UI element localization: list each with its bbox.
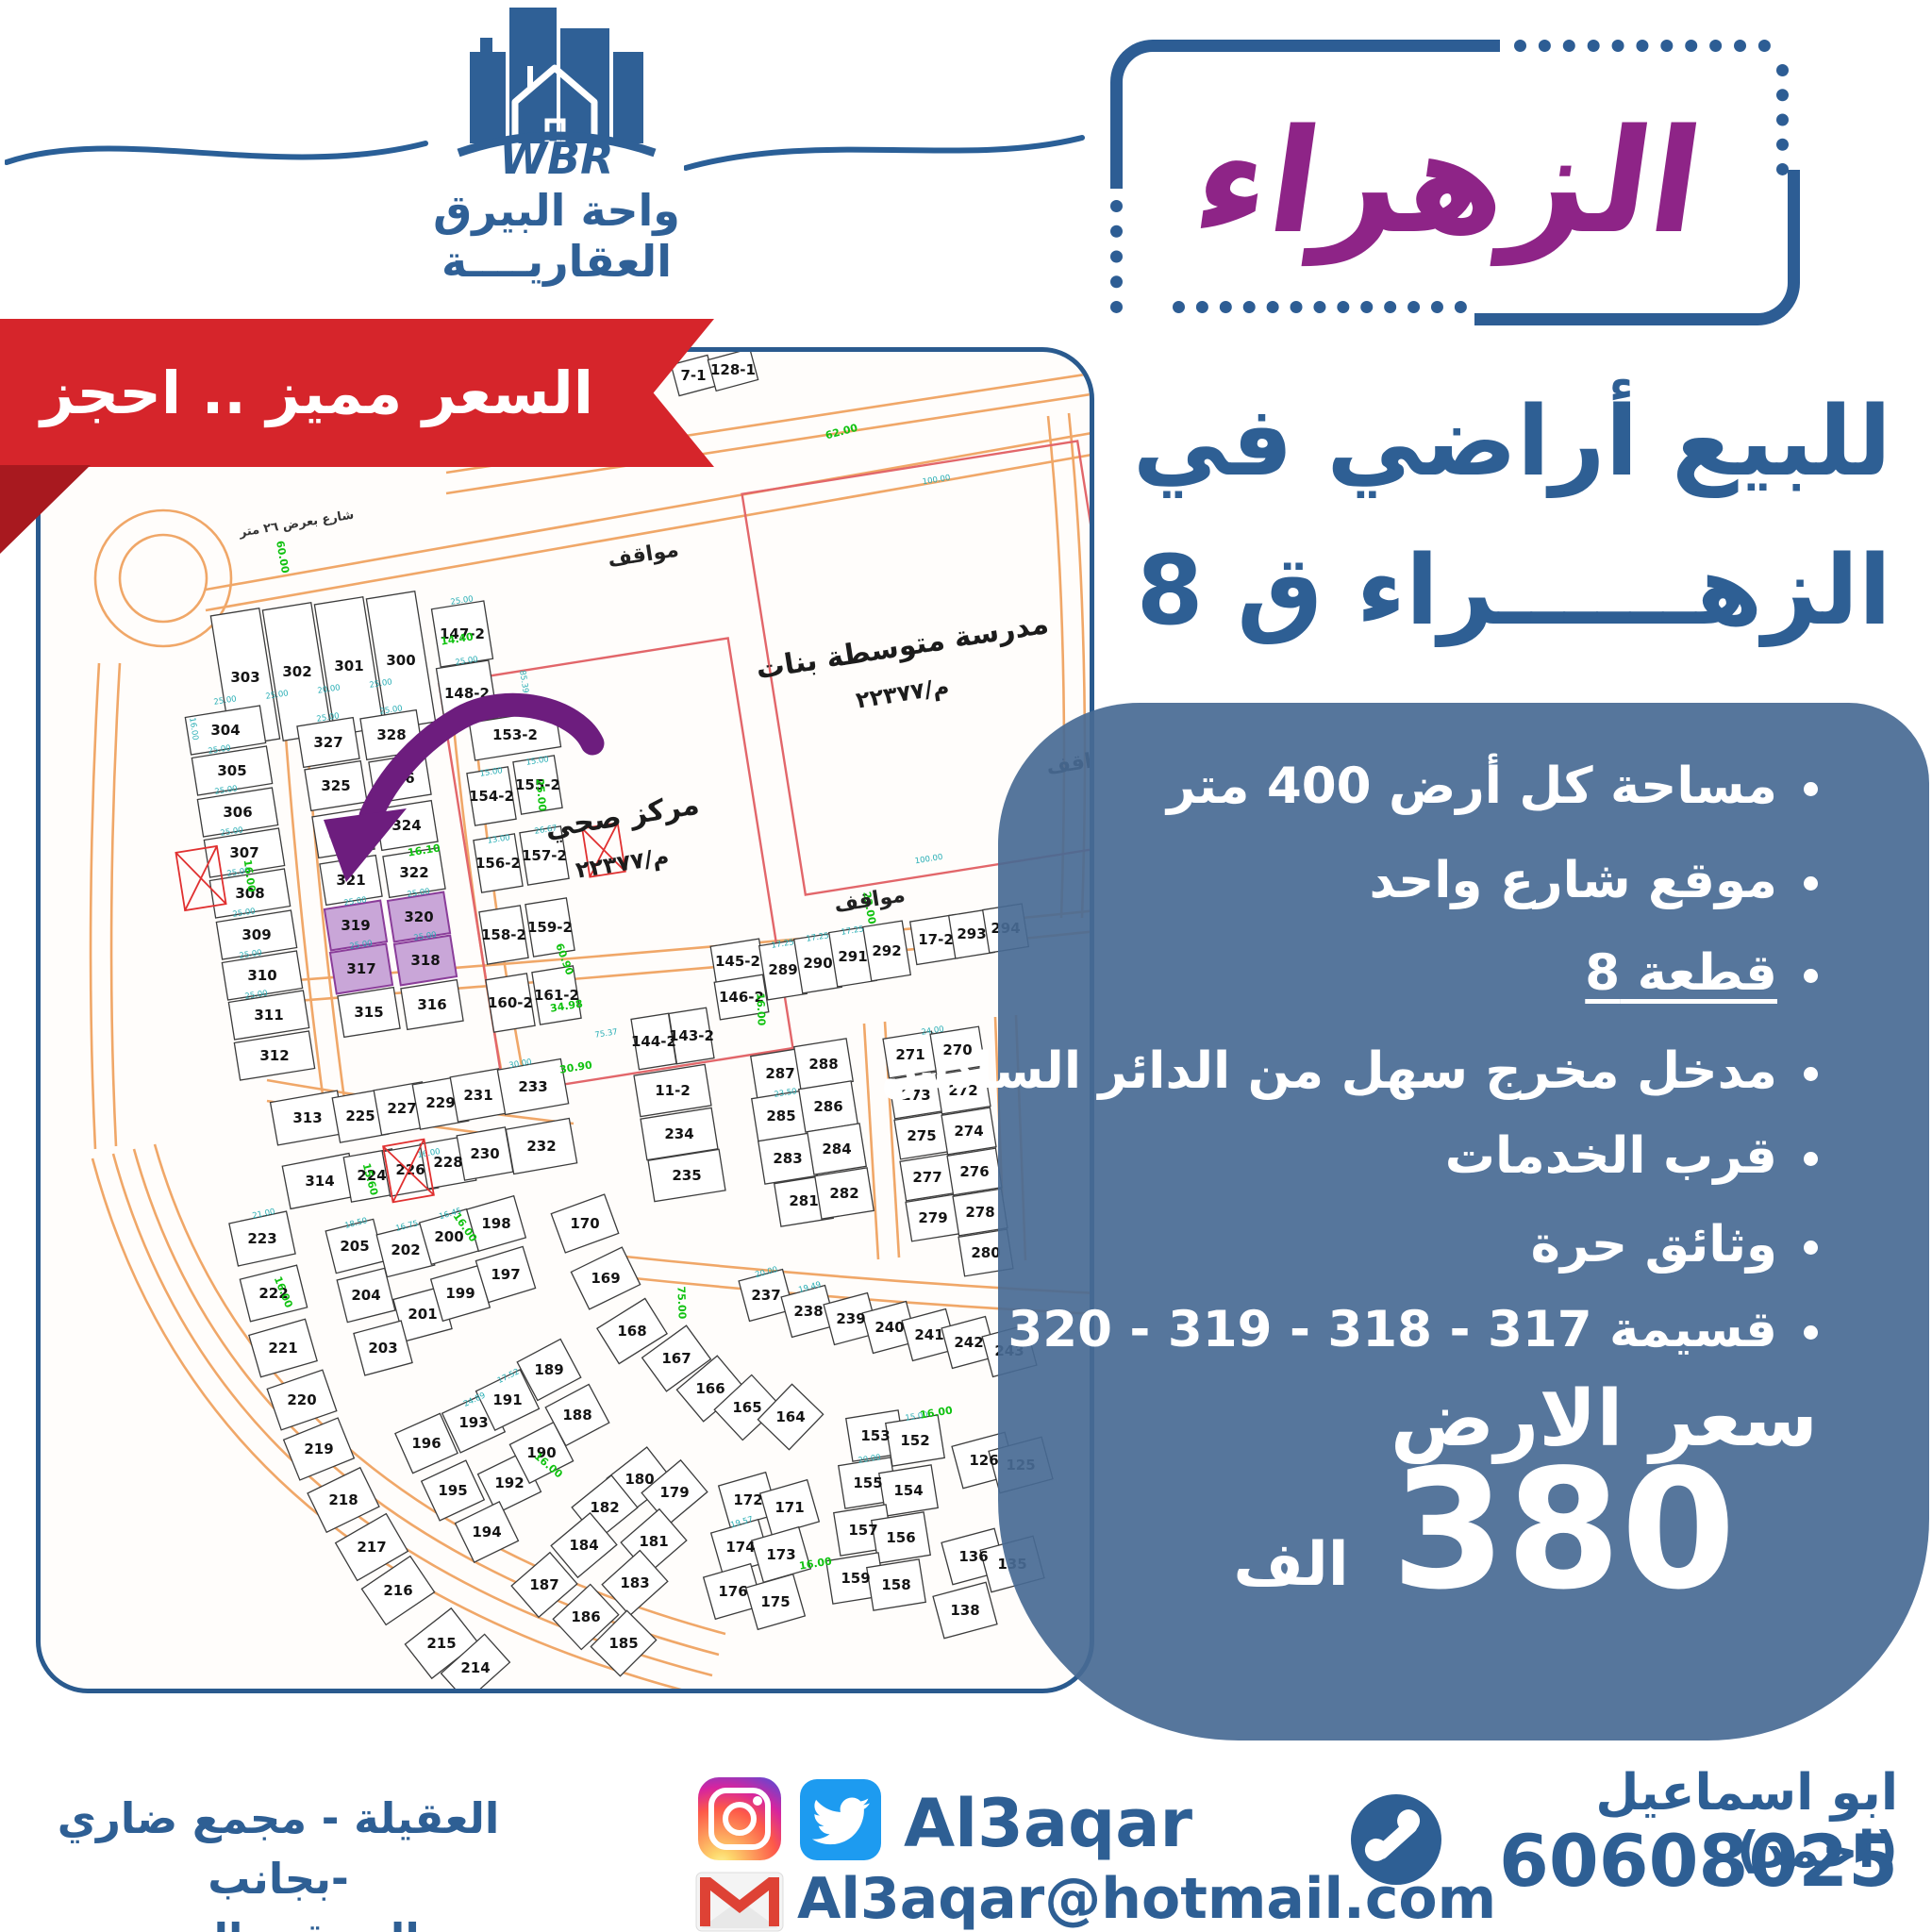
plot-number: 232 <box>526 1138 556 1155</box>
feature-item: مدخل مخرج سهل من الدائر السادس <box>881 1042 1818 1100</box>
plot-number: 7-1 <box>680 367 706 384</box>
plot-number: 187 <box>529 1576 558 1593</box>
feature-item: موقع شارع واحد <box>1369 852 1818 909</box>
plot-number: 158-2 <box>481 926 526 943</box>
site-plan-map: 303302301300147-2148-2304305306307308309… <box>36 347 1094 1693</box>
plot-number: 169 <box>591 1270 620 1287</box>
plot-number: 192 <box>494 1474 524 1491</box>
dimension-label: 85.39 <box>517 670 530 694</box>
poster: WBR واحة البيرق العقاريــــة الزهراء للب… <box>0 0 1932 1932</box>
road-width-label: 75.00 <box>675 1286 688 1320</box>
plot-number: 156 <box>886 1529 915 1546</box>
plot-number: 193 <box>458 1414 488 1431</box>
plot-number: 204 <box>351 1287 380 1304</box>
school-label: مدرسة متوسطة بنات <box>754 608 1051 687</box>
plot-number: 322 <box>399 864 428 881</box>
plot-number: 327 <box>313 734 342 751</box>
plot-number: 278 <box>965 1204 994 1221</box>
instagram-icon[interactable] <box>696 1775 783 1862</box>
road-width-label: 16.00 <box>754 992 767 1026</box>
plot-number: 291 <box>838 948 867 965</box>
parking-label: مواقف <box>607 538 681 573</box>
plot-number: 286 <box>813 1098 842 1115</box>
plot-number: 315 <box>354 1004 383 1021</box>
price: الف 380 <box>1234 1448 1736 1613</box>
gmail-icon[interactable] <box>695 1872 784 1932</box>
plot-number: 138 <box>950 1602 979 1619</box>
wave-middle-icon <box>684 125 1085 183</box>
feature-item: قرب الخدمات <box>1445 1127 1818 1185</box>
plot-number: 217 <box>357 1539 386 1556</box>
plot-number: 145-2 <box>715 953 760 970</box>
plot-number: 197 <box>491 1266 520 1283</box>
plot-number: 328 <box>376 726 406 743</box>
phone-icon <box>1347 1790 1445 1889</box>
plot-number: 202 <box>391 1241 420 1258</box>
plot-number: 159-2 <box>527 919 573 936</box>
plot-number: 11-2 <box>655 1082 691 1099</box>
plot-number: 284 <box>822 1141 851 1158</box>
plot-number: 175 <box>760 1593 790 1610</box>
plot-number: 173 <box>766 1546 795 1563</box>
address-line2: البيرق - الدور السادس - مكتب 6 <box>52 1909 505 1932</box>
road-width-label: 62.00 <box>824 422 859 442</box>
feature-item: قسيمة 317 ‏- 318 ‏- 319 ‏- 320 <box>1008 1301 1818 1358</box>
plot-number: 238 <box>793 1303 823 1320</box>
plot-number: 288 <box>808 1056 838 1073</box>
bullet-icon <box>1804 1067 1818 1081</box>
subtitle-line2: الزهــــــراء ق 8 <box>1057 517 1891 666</box>
social-handle[interactable]: Al3aqar <box>904 1785 1192 1862</box>
plot-number: 235 <box>672 1167 701 1184</box>
plot-number: 231 <box>463 1087 492 1104</box>
plot-number: 168 <box>617 1323 646 1340</box>
plot-number: 17-2 <box>918 931 954 948</box>
plot-number: 156-2 <box>475 855 521 872</box>
plot-number: 189 <box>534 1361 563 1378</box>
subtitle-line1: للبيع أراضي في <box>1057 368 1891 517</box>
plot-number: 309 <box>241 926 271 943</box>
plot-number: 233 <box>518 1078 547 1095</box>
plot-number: 136 <box>958 1548 988 1565</box>
plot-number: 279 <box>918 1209 947 1226</box>
plot-number: 303 <box>230 669 259 686</box>
plot-number: 225 <box>345 1108 375 1124</box>
plot-number: 157-2 <box>522 847 567 864</box>
features-panel: مساحة كل أرض 400 متر موقع شارع واحد قطعة… <box>998 703 1929 1740</box>
plot-number: 171 <box>774 1499 804 1516</box>
plot-number: 188 <box>562 1407 591 1424</box>
plot-number: 305 <box>217 762 246 779</box>
feature-item: مساحة كل أرض 400 متر <box>1167 758 1818 815</box>
address-line1: العقيلة - مجمع ضاري -بجانب <box>52 1789 505 1909</box>
street-label: شارع بعرض ٢٦ متر <box>238 508 356 541</box>
plot-number: 281 <box>789 1192 818 1209</box>
plot-number: 293 <box>957 925 986 942</box>
plot-number: 227 <box>387 1100 416 1117</box>
dimension-label: 100.00 <box>922 474 951 488</box>
plot-number: 182 <box>590 1499 619 1516</box>
plot-number: 154-2 <box>469 788 514 805</box>
plot-number: 275 <box>907 1127 936 1144</box>
twitter-icon[interactable] <box>798 1777 883 1862</box>
agent-phone-number[interactable]: 60608025 <box>1472 1819 1898 1903</box>
plot-number: 218 <box>328 1491 358 1508</box>
plot-number: 200 <box>434 1228 463 1245</box>
plot-number: 183 <box>620 1574 649 1591</box>
plot-number: 289 <box>768 961 797 978</box>
site-plan-svg: 303302301300147-2148-2304305306307308309… <box>41 352 1094 1693</box>
plot-number: 219 <box>304 1441 333 1457</box>
plot-number: 285 <box>766 1108 795 1124</box>
plot-number: 153 <box>860 1427 890 1444</box>
plot-number: 165 <box>732 1399 761 1416</box>
plot-number: 317 <box>346 960 375 977</box>
feature-item: وثائق حرة <box>1531 1216 1818 1274</box>
plot-number: 176 <box>718 1583 747 1600</box>
plot-number: 314 <box>305 1173 334 1190</box>
bullet-icon <box>1804 782 1818 796</box>
clinic-label: مركز صحي <box>542 788 701 844</box>
plot-number: 319 <box>341 917 370 934</box>
plot-number: 179 <box>659 1484 689 1501</box>
subtitle: للبيع أراضي في الزهــــــراء ق 8 <box>1057 368 1891 666</box>
plot-number: 205 <box>340 1238 369 1255</box>
brand-name-line2: العقاريــــة <box>396 236 717 287</box>
bullet-icon <box>1804 1241 1818 1255</box>
plot-number: 199 <box>445 1285 475 1302</box>
plot-number: 229 <box>425 1094 455 1111</box>
plot-number: 283 <box>773 1150 802 1167</box>
road-width-label: 30.90 <box>558 1058 593 1075</box>
plot-number: 164 <box>775 1408 805 1425</box>
plot-number: 301 <box>334 658 363 675</box>
bullet-icon <box>1804 1325 1818 1340</box>
title-box-border-dots <box>1173 301 1467 313</box>
plot-number: 313 <box>292 1109 322 1126</box>
plot-number: 226 <box>395 1161 425 1178</box>
plot-number: 320 <box>404 908 433 925</box>
plot-number: 195 <box>438 1482 467 1499</box>
plot-number: 170 <box>570 1215 599 1232</box>
plot-number: 325 <box>321 777 350 794</box>
plot-number: 239 <box>836 1310 865 1327</box>
plot-number: 221 <box>268 1340 297 1357</box>
plot-number: 215 <box>426 1635 456 1652</box>
plot-number: 160-2 <box>488 994 533 1011</box>
plot-number: 158 <box>881 1576 910 1593</box>
plot-number: 154 <box>893 1482 923 1499</box>
plot-number: 184 <box>569 1537 598 1554</box>
plot-number: 167 <box>661 1350 691 1367</box>
plot-number: 216 <box>383 1582 412 1599</box>
plot-number: 214 <box>460 1659 490 1676</box>
dimension-label: 75.37 <box>594 1027 619 1041</box>
road-width-label: 16.00 <box>919 1404 954 1421</box>
plot-number: 304 <box>210 722 240 739</box>
plot-number: 128-1 <box>710 361 756 378</box>
plot-number: 234 <box>664 1125 693 1142</box>
plot-number: 280 <box>971 1244 1000 1261</box>
road-width-label: 60.00 <box>274 540 291 575</box>
plot-number: 306 <box>223 804 252 821</box>
plot-number: 172 <box>733 1491 762 1508</box>
page-title: الزهراء <box>1106 66 1790 302</box>
plot-number: 166 <box>695 1380 724 1397</box>
bullet-icon <box>1804 876 1818 891</box>
plot-number: 311 <box>254 1007 283 1024</box>
school-number: م/٢٢٣٧٧ <box>854 673 951 713</box>
plot-number: 181 <box>639 1533 668 1550</box>
plot-number: 302 <box>282 663 311 680</box>
plot-number: 143-2 <box>669 1027 714 1044</box>
plot-number: 242 <box>954 1334 983 1351</box>
plot-number: 194 <box>472 1524 501 1541</box>
svg-text:WBR: WBR <box>499 133 613 181</box>
wave-left-icon <box>5 123 429 189</box>
plot-number: 282 <box>829 1185 858 1202</box>
plot-number: 310 <box>247 967 276 984</box>
plot-number: 277 <box>912 1169 941 1186</box>
plot-number: 153-2 <box>492 726 538 743</box>
plot-number: 240 <box>874 1319 904 1336</box>
title-box-border-dots <box>1514 40 1771 52</box>
plot-number: 220 <box>287 1391 316 1408</box>
plot-number: 159 <box>841 1570 870 1587</box>
plot-number: 185 <box>608 1635 638 1652</box>
plot-number: 186 <box>571 1608 600 1625</box>
price-unit: الف <box>1234 1530 1349 1613</box>
wbr-logo-icon: WBR <box>441 0 672 181</box>
dimension-label: 100.00 <box>914 853 943 867</box>
feature-item: قطعة 8 <box>1585 944 1818 1002</box>
plot-number: 230 <box>470 1145 499 1162</box>
plot-number: 276 <box>959 1163 989 1180</box>
plot-number: 307 <box>229 844 258 861</box>
plot-number: 318 <box>410 952 440 969</box>
plot-number: 174 <box>725 1539 755 1556</box>
plot-number: 157 <box>848 1522 877 1539</box>
plot-number: 191 <box>492 1391 522 1408</box>
price-value: 380 <box>1391 1448 1736 1613</box>
plot-number: 126 <box>969 1452 998 1469</box>
plot-number: 312 <box>259 1047 289 1064</box>
bullet-icon <box>1804 1152 1818 1166</box>
brand-name-line1: واحة البيرق <box>396 185 717 236</box>
office-address: العقيلة - مجمع ضاري -بجانب البيرق - الدو… <box>52 1789 505 1932</box>
clinic-number: م/٢٢٣٧٧ <box>574 842 671 883</box>
plot-number: 237 <box>751 1287 780 1304</box>
plot-number: 287 <box>765 1065 794 1082</box>
plot-number: 274 <box>954 1123 983 1140</box>
promo-ribbon-text: السعر مميز .. احجز الآن <box>0 319 634 467</box>
plot-number: 316 <box>417 996 446 1013</box>
plot-number: 155 <box>853 1474 882 1491</box>
plot-number: 180 <box>625 1471 654 1488</box>
promo-ribbon: السعر مميز .. احجز الآن <box>0 319 714 467</box>
bullet-icon <box>1804 969 1818 983</box>
plot-number: 196 <box>411 1435 441 1452</box>
plot-number: 198 <box>481 1215 510 1232</box>
plot-number: 203 <box>368 1340 397 1357</box>
plot-number: 290 <box>803 955 832 972</box>
plot-number: 300 <box>386 652 415 669</box>
plot-number: 241 <box>914 1326 943 1343</box>
plot-number: 292 <box>872 942 901 959</box>
plot-number: 152 <box>900 1432 929 1449</box>
plot-number: 201 <box>408 1306 437 1323</box>
plot-number: 223 <box>247 1230 276 1247</box>
